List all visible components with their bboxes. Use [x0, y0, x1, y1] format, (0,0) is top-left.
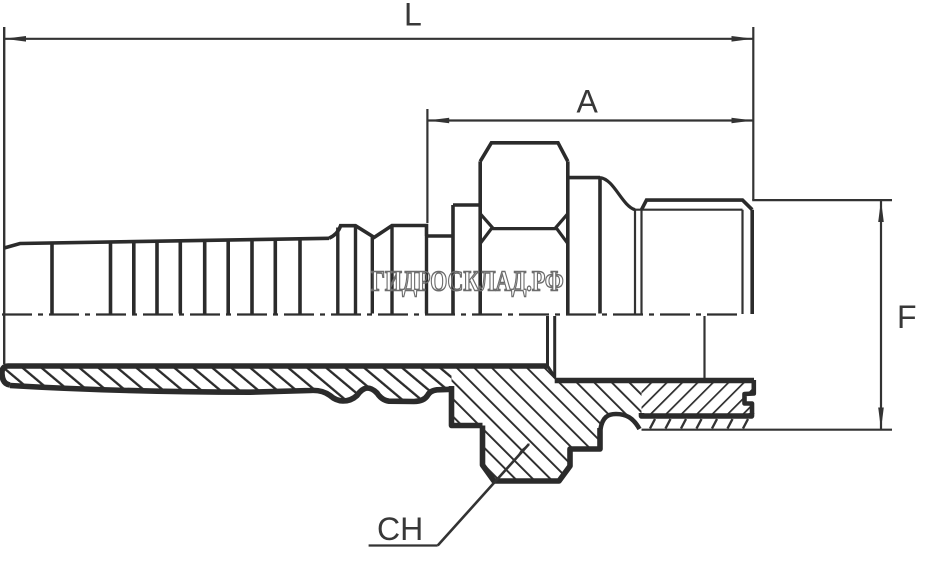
svg-text:CH: CH: [377, 511, 423, 547]
svg-text:ГИДРОСКЛАД.РФ: ГИДРОСКЛАД.РФ: [371, 265, 564, 298]
svg-text:F: F: [897, 299, 917, 335]
svg-text:L: L: [404, 0, 422, 33]
svg-text:A: A: [577, 84, 599, 120]
